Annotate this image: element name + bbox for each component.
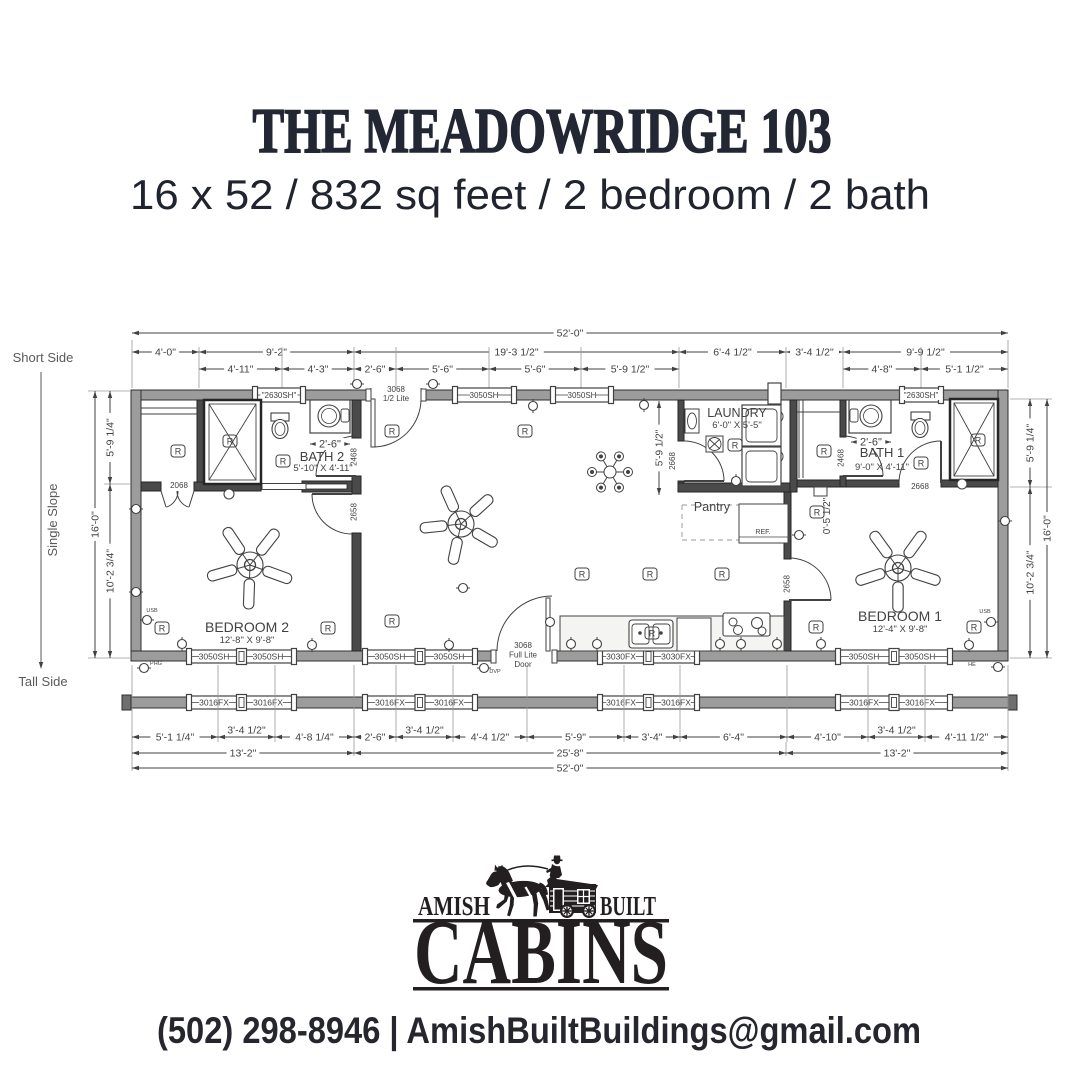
svg-text:R: R	[280, 457, 287, 467]
svg-text:3016FX: 3016FX	[199, 698, 229, 708]
svg-text:9'-2": 9'-2"	[266, 347, 287, 359]
svg-text:(502) 298-8946 | AmishBuiltBui: (502) 298-8946 | AmishBuiltBuildings@gma…	[157, 1010, 921, 1052]
svg-text:3050SH: 3050SH	[905, 652, 936, 662]
svg-text:R: R	[732, 441, 739, 451]
svg-text:2468: 2468	[837, 449, 846, 467]
svg-text:5'-10" X 4'-11": 5'-10" X 4'-11"	[293, 463, 352, 474]
svg-text:CABINS: CABINS	[414, 901, 668, 1003]
svg-text:R: R	[814, 508, 821, 518]
svg-text:1/2 Lite: 1/2 Lite	[383, 394, 410, 403]
svg-text:2068: 2068	[170, 481, 188, 490]
svg-text:16'-0": 16'-0"	[90, 511, 102, 538]
svg-text:3016FX: 3016FX	[849, 698, 879, 708]
svg-text:13'-2": 13'-2"	[884, 748, 911, 760]
svg-text:3030FX: 3030FX	[661, 652, 691, 662]
svg-text:2658: 2658	[350, 503, 359, 521]
svg-text:52'-0": 52'-0"	[557, 763, 584, 775]
svg-text:USB: USB	[979, 609, 991, 615]
svg-text:3016FX: 3016FX	[661, 698, 691, 708]
svg-text:REF.: REF.	[755, 529, 770, 536]
svg-text:R: R	[821, 447, 828, 457]
svg-text:3068: 3068	[387, 385, 405, 394]
svg-text:5'-9 1/2": 5'-9 1/2"	[655, 429, 666, 466]
svg-text:DVP: DVP	[489, 669, 501, 675]
svg-text:6'-4 1/2": 6'-4 1/2"	[713, 347, 752, 359]
svg-text:3'-4 1/2": 3'-4 1/2"	[405, 725, 444, 737]
svg-text:Door: Door	[514, 660, 532, 669]
svg-text:R: R	[389, 617, 396, 627]
svg-text:THE MEADOWRIDGE 103: THE MEADOWRIDGE 103	[253, 95, 832, 166]
svg-text:R: R	[647, 570, 654, 580]
svg-text:R: R	[918, 459, 925, 469]
svg-text:12'-4" X 9'-8": 12'-4" X 9'-8"	[873, 624, 928, 635]
svg-text:BATH 2: BATH 2	[300, 449, 345, 464]
svg-text:4'-11 1/2": 4'-11 1/2"	[945, 732, 989, 744]
svg-text:Full Lite: Full Lite	[509, 651, 538, 660]
svg-text:10'-2 3/4": 10'-2 3/4"	[105, 549, 117, 594]
svg-text:9'-9 1/2": 9'-9 1/2"	[906, 347, 945, 359]
svg-text:R: R	[159, 624, 166, 634]
svg-text:3'-4 1/2": 3'-4 1/2"	[227, 725, 266, 737]
svg-text:2658: 2658	[783, 575, 792, 593]
svg-text:Short Side: Short Side	[13, 350, 74, 365]
svg-text:R: R	[325, 624, 332, 634]
svg-text:3016FX: 3016FX	[905, 698, 935, 708]
svg-text:R: R	[649, 629, 656, 639]
svg-text:HE: HE	[968, 662, 976, 668]
svg-text:5'-9 1/4": 5'-9 1/4"	[1025, 424, 1037, 463]
svg-text:4'-8 1/4": 4'-8 1/4"	[295, 732, 334, 744]
svg-text:R: R	[175, 447, 182, 457]
svg-text:3050SH: 3050SH	[568, 391, 597, 400]
svg-text:3030FX: 3030FX	[606, 652, 636, 662]
svg-text:9'-0" X 4'-11": 9'-0" X 4'-11"	[855, 462, 909, 473]
svg-text:5'-9": 5'-9"	[565, 732, 586, 744]
svg-text:R: R	[389, 427, 396, 437]
svg-text:3016FX: 3016FX	[606, 698, 636, 708]
svg-text:R: R	[719, 570, 726, 580]
svg-text:R: R	[579, 570, 586, 580]
svg-text:R: R	[227, 437, 234, 447]
svg-text:USB: USB	[146, 608, 158, 614]
svg-text:4'-0": 4'-0"	[155, 347, 176, 359]
svg-text:4'-10": 4'-10"	[814, 732, 841, 744]
svg-text:"2630SH": "2630SH"	[904, 391, 939, 400]
svg-text:R: R	[975, 436, 982, 446]
svg-text:4'-8": 4'-8"	[872, 364, 893, 376]
svg-text:LAUNDRY: LAUNDRY	[707, 406, 767, 420]
svg-text:5'-9 1/4": 5'-9 1/4"	[105, 418, 117, 457]
svg-text:13'-2": 13'-2"	[230, 748, 257, 760]
svg-text:R: R	[522, 427, 529, 437]
svg-text:3050SH: 3050SH	[849, 652, 880, 662]
svg-text:12'-8" X 9'-8": 12'-8" X 9'-8"	[220, 635, 275, 646]
svg-text:16 x 52 / 832 sq feet / 2 bedr: 16 x 52 / 832 sq feet / 2 bedroom / 2 ba…	[130, 171, 930, 218]
svg-text:3016FX: 3016FX	[375, 698, 405, 708]
svg-text:3050SH: 3050SH	[253, 652, 284, 662]
svg-text:4'-11": 4'-11"	[228, 364, 254, 376]
svg-text:3050SH: 3050SH	[470, 391, 499, 400]
svg-text:BEDROOM 2: BEDROOM 2	[205, 619, 289, 635]
svg-text:10'-2 3/4": 10'-2 3/4"	[1025, 550, 1037, 595]
svg-text:BEDROOM 1: BEDROOM 1	[858, 608, 942, 624]
svg-text:4'-3": 4'-3"	[308, 364, 329, 376]
svg-text:2668: 2668	[668, 452, 677, 470]
svg-text:Single Slope: Single Slope	[45, 484, 60, 557]
svg-text:3016FX: 3016FX	[253, 698, 283, 708]
svg-text:5'-6": 5'-6"	[525, 364, 546, 376]
svg-text:3050SH: 3050SH	[375, 652, 406, 662]
svg-text:2'-6": 2'-6"	[365, 732, 386, 744]
svg-text:3'-4": 3'-4"	[642, 732, 663, 744]
svg-text:PHG: PHG	[150, 661, 162, 667]
svg-text:3050SH: 3050SH	[434, 652, 465, 662]
svg-text:BATH 1: BATH 1	[860, 445, 905, 460]
svg-text:19'-3 1/2": 19'-3 1/2"	[494, 347, 539, 359]
svg-text:2668: 2668	[911, 482, 929, 491]
svg-text:R: R	[813, 623, 820, 633]
svg-text:5'-9 1/2": 5'-9 1/2"	[611, 364, 650, 376]
svg-text:5'-6": 5'-6"	[432, 364, 453, 376]
svg-text:6'-0" X 5'-5": 6'-0" X 5'-5"	[712, 420, 761, 431]
svg-text:3'-4 1/2": 3'-4 1/2"	[795, 347, 834, 359]
svg-text:"2630SH": "2630SH"	[262, 391, 297, 400]
svg-text:2'-6": 2'-6"	[365, 364, 386, 376]
svg-text:6'-4": 6'-4"	[723, 732, 744, 744]
svg-text:Pantry: Pantry	[694, 500, 731, 514]
svg-text:25'-8": 25'-8"	[557, 748, 584, 760]
svg-text:4'-4 1/2": 4'-4 1/2"	[471, 732, 510, 744]
svg-text:3'-4 1/2": 3'-4 1/2"	[877, 725, 916, 737]
svg-text:Tall Side: Tall Side	[18, 674, 67, 689]
svg-text:16'-0": 16'-0"	[1042, 515, 1054, 542]
svg-text:R: R	[971, 623, 978, 633]
svg-text:3068: 3068	[514, 641, 532, 650]
svg-text:5'-1 1/2": 5'-1 1/2"	[945, 364, 984, 376]
svg-text:3050SH: 3050SH	[199, 652, 230, 662]
svg-text:5'-1 1/4": 5'-1 1/4"	[156, 732, 195, 744]
svg-text:52'-0": 52'-0"	[557, 328, 584, 340]
svg-text:3016FX: 3016FX	[434, 698, 464, 708]
